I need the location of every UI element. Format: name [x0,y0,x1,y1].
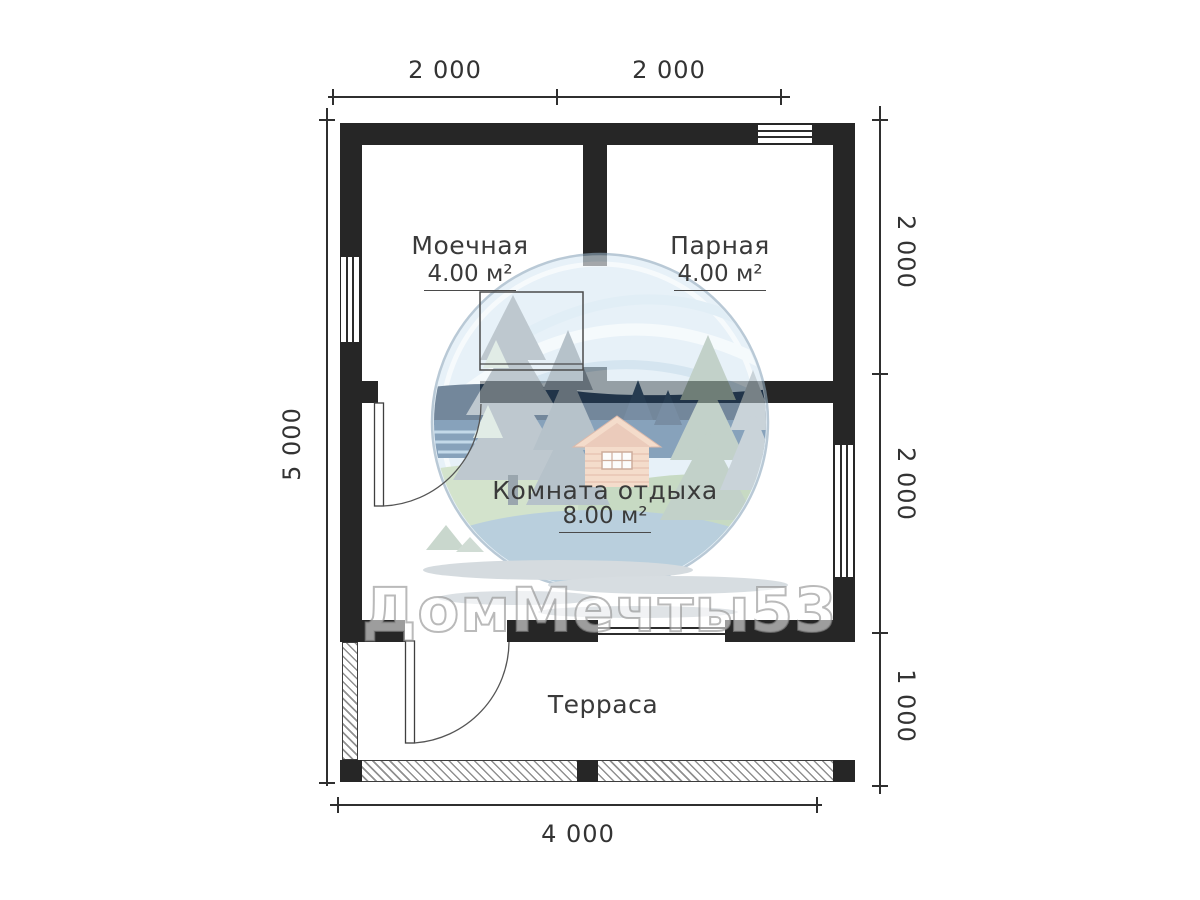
logo-circle [432,254,768,590]
room-label-moechnaya: Моечная [370,231,570,261]
terrace-post-left [340,760,362,782]
room-label-terrasa: Терраса [503,690,703,720]
room-area-moechnaya: 4.00 м² [370,261,570,291]
room-area-komnata-otdyha: 8.00 м² [455,503,755,533]
dimension-line-top [328,96,790,98]
dimension-label-right-2: 2 000 [892,434,920,534]
window-symbol-right [835,445,853,577]
terrace-post-middle [577,760,598,782]
wall-left [340,123,362,642]
dim-tick [872,632,888,634]
shower-tray-symbol [480,292,583,370]
dimension-label-top-left: 2 000 [395,56,495,84]
dimension-label-bottom: 4 000 [528,820,628,848]
dimension-label-right-1: 2 000 [892,202,920,302]
dimension-label-top-right: 2 000 [619,56,719,84]
door-symbol-terrace [406,641,510,743]
dimension-line-bottom [330,804,822,806]
dimension-label-left: 5 000 [278,394,306,494]
wall-partition-upper [583,145,607,266]
watermark-text: ДомМечты53 [362,575,837,646]
dim-tick [780,89,782,105]
logo-water [408,420,804,458]
room-area-parnaya: 4.00 м² [620,261,820,291]
wall-middle-left [362,381,378,403]
wall-middle-right [480,381,833,403]
dim-tick [332,89,334,105]
dim-tick [319,119,335,121]
terrace-post-right [833,760,855,782]
dim-tick [872,373,888,375]
window-symbol-left [341,257,359,342]
room-label-parnaya: Парная [620,231,820,261]
floor-plan-canvas: ДомМечты53 Моечная 4.00 м² Парная 4.00 м… [0,0,1200,900]
dim-tick [556,89,558,105]
dimension-line-left [326,108,328,786]
dim-tick [337,797,339,813]
dim-tick [816,797,818,813]
room-label-komnata-otdyha: Комната отдыха [455,476,755,506]
dim-tick [872,785,888,787]
dim-tick [319,782,335,784]
dim-tick [872,119,888,121]
dimension-line-right [879,106,881,794]
dimension-label-right-3: 1 000 [892,656,920,756]
window-symbol-top [758,125,812,143]
terrace-wall-left [342,642,358,760]
